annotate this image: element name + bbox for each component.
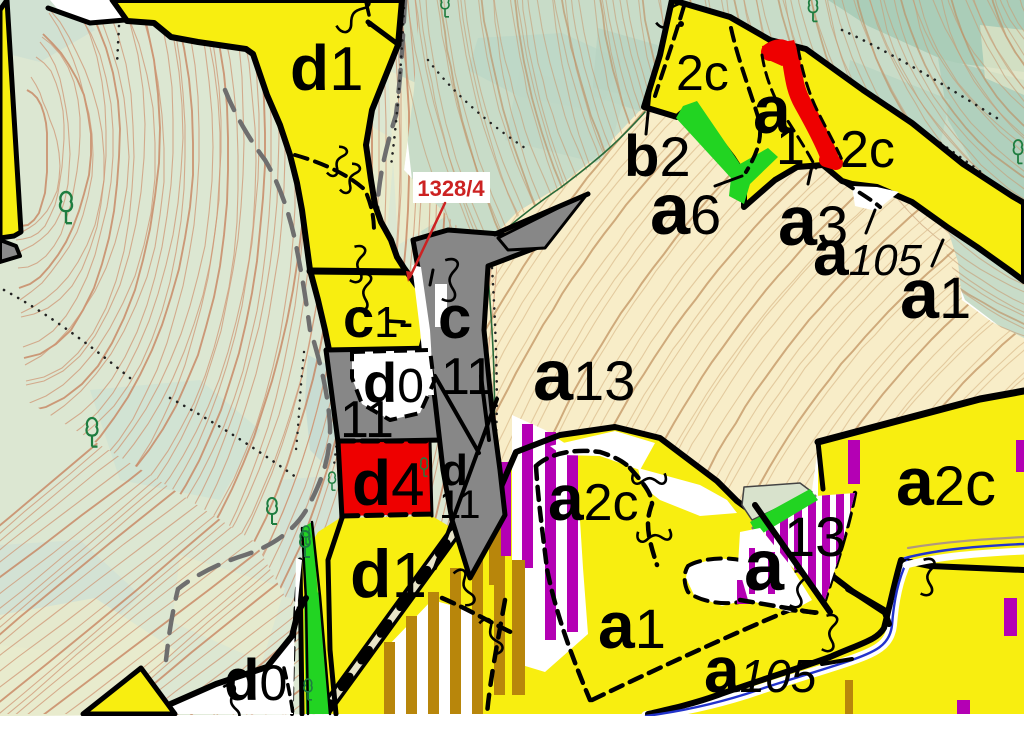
svg-text:2c: 2c — [840, 121, 895, 179]
svg-text:d0: d0 — [224, 648, 287, 713]
svg-text:2c: 2c — [676, 45, 729, 101]
svg-text:11: 11 — [340, 391, 394, 449]
svg-text:13: 13 — [784, 505, 846, 568]
svg-text:d1: d1 — [350, 536, 427, 612]
svg-text:1: 1 — [776, 118, 805, 176]
svg-text:d4: d4 — [352, 447, 424, 519]
svg-text:11: 11 — [439, 483, 481, 527]
svg-text:11: 11 — [441, 348, 495, 406]
svg-text:c: c — [438, 284, 471, 351]
svg-text:1328/4: 1328/4 — [417, 176, 485, 201]
svg-text:a1: a1 — [598, 588, 666, 662]
svg-text:a1: a1 — [900, 255, 971, 333]
svg-text:a2c: a2c — [896, 444, 996, 520]
svg-text:d1: d1 — [290, 32, 364, 104]
svg-text:a: a — [744, 526, 785, 606]
